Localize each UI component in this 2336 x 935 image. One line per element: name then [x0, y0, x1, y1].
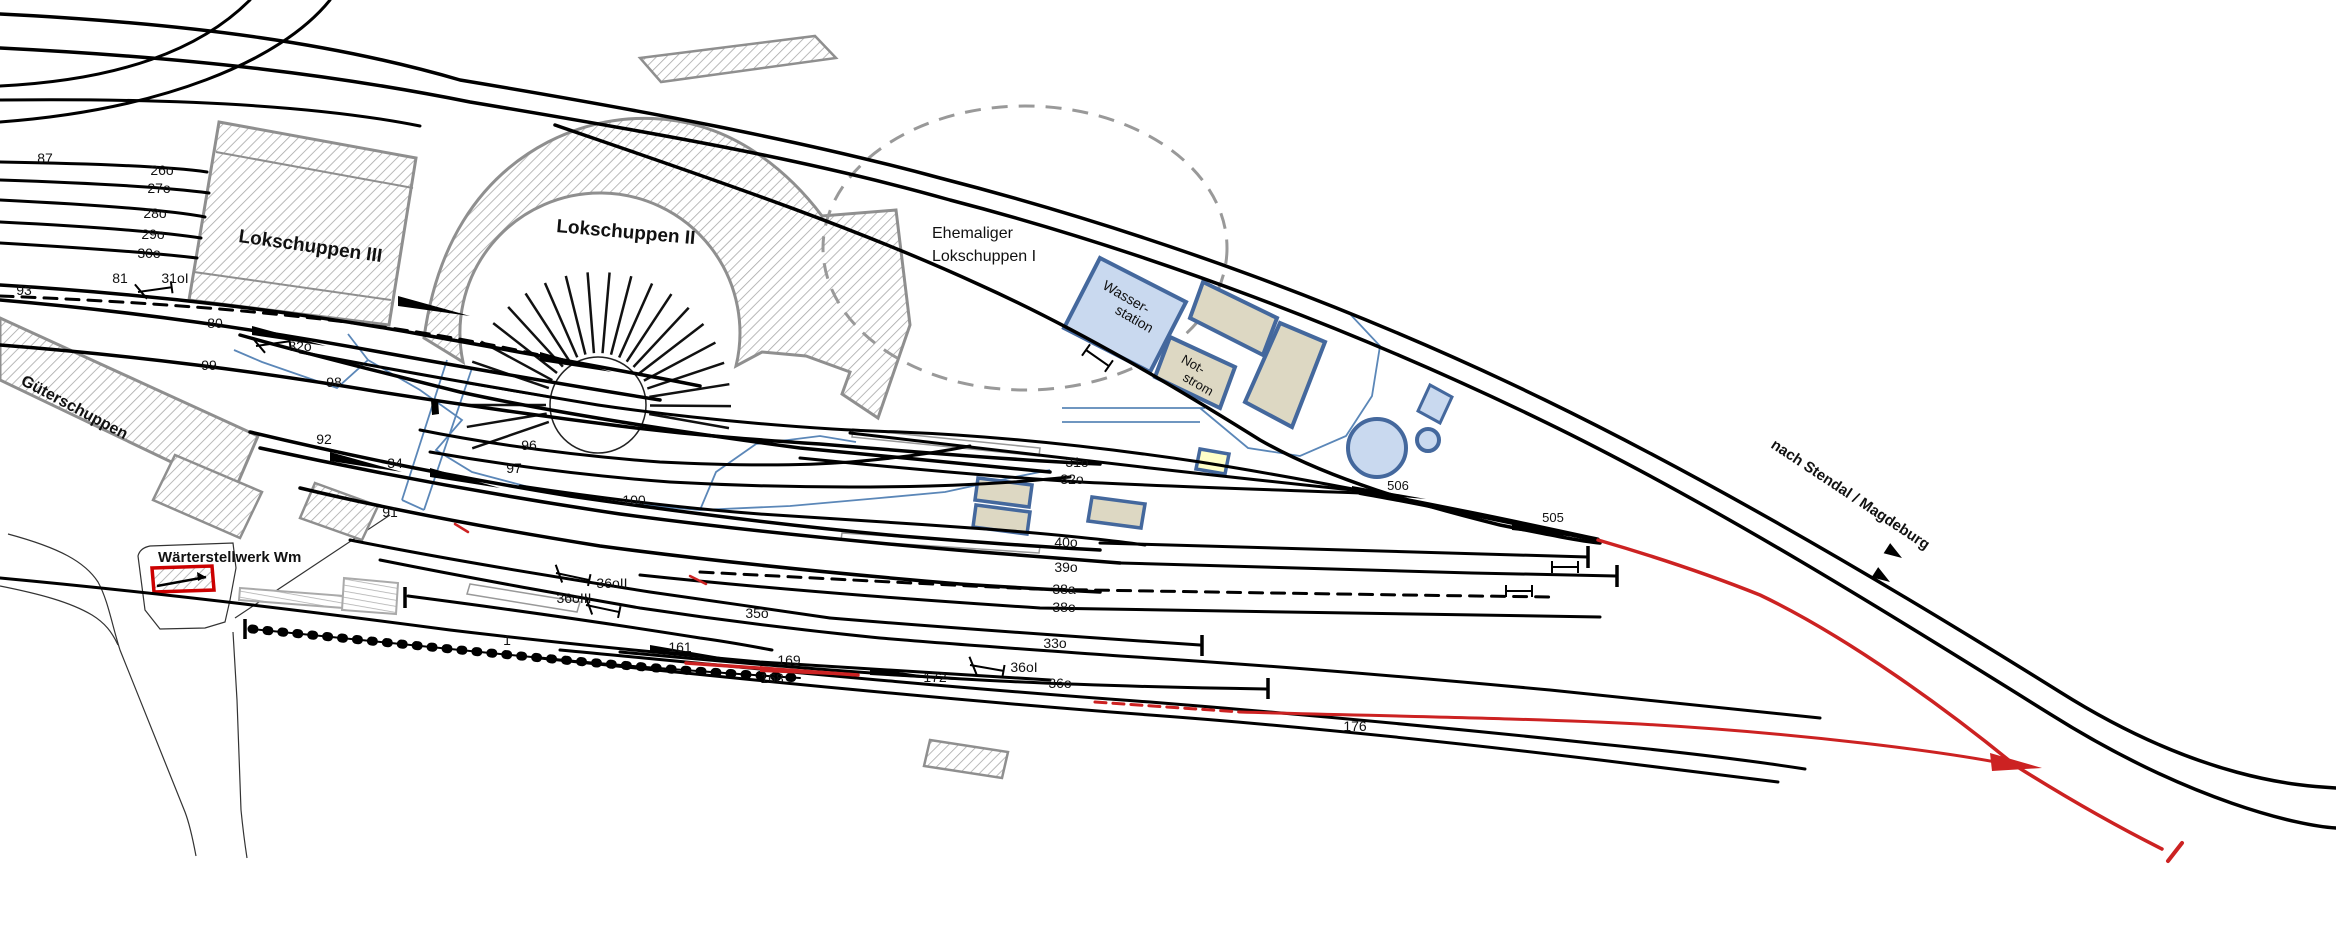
- track-label-93: 93: [16, 282, 32, 298]
- signal-label-36oII: 36oII: [596, 575, 627, 591]
- signal-label-36oIII: 36oIII: [556, 590, 591, 606]
- building-small-south: [924, 740, 1008, 778]
- building-label-ehemaliger-line1: Ehemaliger: [932, 225, 1014, 242]
- track-label-35o: 35o: [745, 605, 769, 621]
- track-26o: [0, 162, 207, 172]
- track-30o: [0, 243, 197, 258]
- track-label-172: 172: [923, 669, 947, 685]
- track-plan-svg: 8726o27o28o29o30o938131oI8032o9998923491…: [0, 0, 2336, 935]
- road-edge: [233, 632, 247, 858]
- track-label-31o: 31o: [1065, 454, 1089, 470]
- track-label-26o: 26o: [150, 162, 174, 178]
- track-39o: [1120, 563, 1616, 576]
- curve-track: [0, 0, 250, 86]
- switch-label-505: 505: [1542, 510, 1564, 525]
- track-label-39o: 39o: [1054, 559, 1078, 575]
- arrow-icon: [1884, 543, 1906, 563]
- building-waerterstellwerk: [152, 566, 214, 592]
- turntable-group: [465, 272, 731, 453]
- track-label-33o: 33o: [1043, 635, 1067, 651]
- track-87: [0, 100, 420, 126]
- track-label-91: 91: [382, 504, 398, 520]
- track-label-81: 81: [112, 270, 128, 286]
- track-27o: [0, 180, 209, 193]
- track-100: [520, 486, 1145, 545]
- direction-arrows: [197, 543, 1905, 587]
- track-label-161: 161: [668, 639, 692, 655]
- track-label-96: 96: [521, 437, 537, 453]
- water-tank-small: [1417, 429, 1439, 451]
- track-label-176: 176: [1343, 718, 1367, 734]
- red-track-end: [2016, 766, 2162, 849]
- track-28o: [0, 200, 205, 217]
- track-label-92: 92: [316, 431, 332, 447]
- track-label-34: 34: [387, 455, 403, 471]
- track-label-38a: 38a: [1052, 581, 1076, 597]
- water-tank-large: [1348, 419, 1406, 477]
- signal-label-31oI: 31oI: [161, 270, 188, 286]
- track-label-100: 100: [622, 492, 646, 508]
- red-tracks-layer: [455, 524, 2182, 861]
- road-edge: [0, 586, 118, 645]
- track-label-98: 98: [326, 374, 342, 390]
- track-label-168: 168: [760, 670, 784, 686]
- track-label-36o: 36o: [1048, 675, 1072, 691]
- track-label-169: 169: [777, 652, 801, 668]
- signal-label-36oI: 36oI: [1010, 659, 1037, 675]
- building-label-lokschuppen-2: Lokschuppen II: [556, 216, 697, 249]
- track-label-40o: 40o: [1054, 534, 1078, 550]
- red-switch-wedge: [1990, 753, 2042, 771]
- tracks-layer: [0, 0, 2336, 828]
- track-label-32o: 32o: [1060, 471, 1084, 487]
- switch-label-506: 506: [1387, 478, 1409, 493]
- building-small-north: [640, 36, 836, 82]
- building-tan-mid: [1088, 497, 1145, 528]
- track-label-38o: 38o: [1052, 599, 1076, 615]
- signal-label-32o-west: 32o: [288, 338, 312, 354]
- red-buffer-stop: [2168, 843, 2182, 861]
- platform-block: [342, 578, 398, 614]
- track-label-99: 99: [201, 357, 217, 373]
- track-label-87: 87: [37, 150, 53, 166]
- track-label-1: 1: [503, 632, 511, 648]
- building-gueterschuppen: [0, 318, 258, 492]
- track-40o: [1100, 543, 1588, 557]
- track-label-27o: 27o: [147, 180, 171, 196]
- track-plan-canvas: 8726o27o28o29o30o938131oI8032o9998923491…: [0, 0, 2336, 935]
- track-label-97: 97: [506, 460, 522, 476]
- track-label-30o: 30o: [137, 245, 161, 261]
- track-35o: [830, 618, 1200, 645]
- building-label-ehemaliger-line2: Lokschuppen I: [932, 248, 1036, 265]
- building-blue-small: [1418, 385, 1452, 423]
- track-29o: [0, 222, 201, 238]
- track-label-29o: 29o: [141, 226, 165, 242]
- track-91: [300, 488, 1100, 592]
- track-label-80: 80: [207, 315, 223, 331]
- track-south: [540, 658, 1778, 782]
- building-tan-upper: [1190, 282, 1277, 355]
- track-label-28o: 28o: [143, 205, 167, 221]
- building-label-waerterstellwerk: Wärterstellwerk Wm: [158, 549, 301, 566]
- route-label-stendal-magdeburg: nach Stendal / Magdeburg: [1768, 436, 1933, 553]
